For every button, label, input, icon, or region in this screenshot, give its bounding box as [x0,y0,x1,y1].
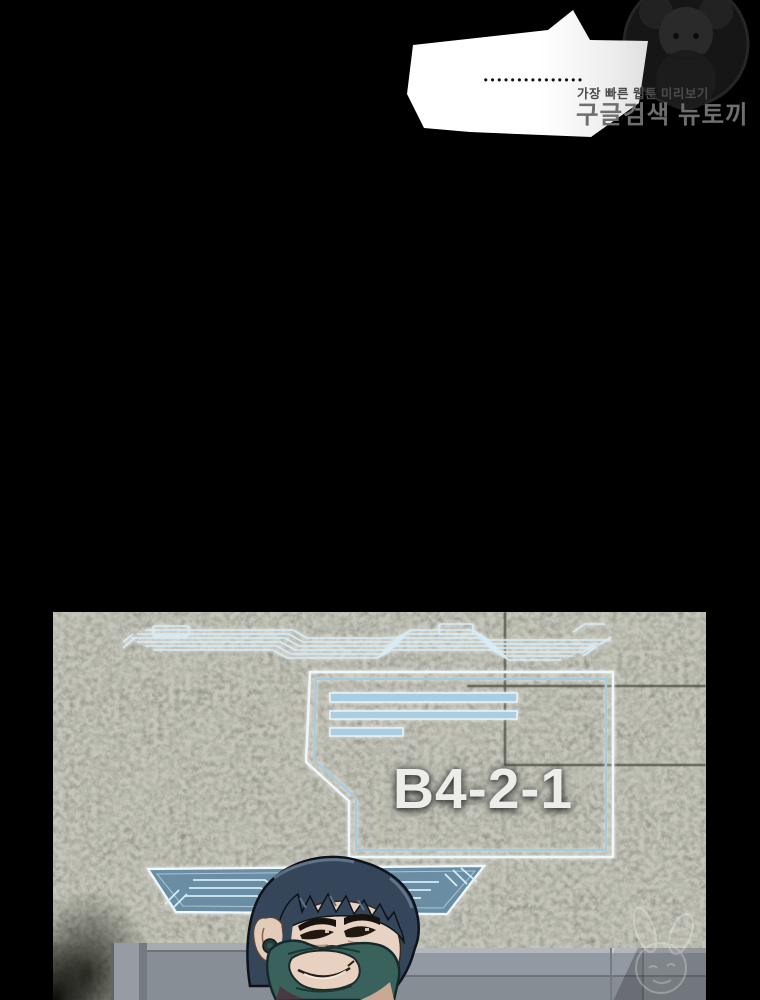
comic-panel: B4-2-1 [53,612,706,1000]
rabbit-watermark-icon [623,902,706,1000]
circuit-trace-icon [123,624,611,660]
sign-bar [330,711,517,719]
speech-bubble-dots: ●●●●●●●●●●●●●●● [476,74,592,86]
webtoon-page: ●●●●●●●●●●●●●●● 가장 빠른 웹툰 미리보기 구글검색 뉴토끼 [0,0,760,1000]
sign-bar [330,728,403,736]
watermark-brand: 구글검색 뉴토끼 [576,96,749,131]
sign-bar [330,693,517,702]
sign-bars [330,693,517,736]
sign-label: B4-2-1 [353,761,613,818]
masked-man-illustration [240,854,425,1000]
